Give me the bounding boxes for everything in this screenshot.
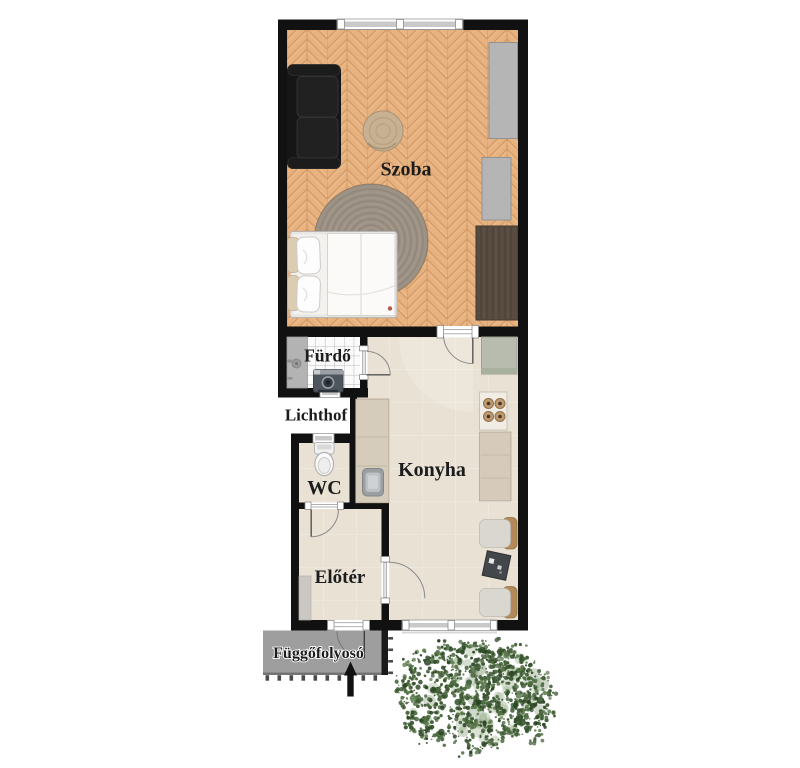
svg-text:Lichthof: Lichthof <box>285 406 348 425</box>
svg-text:WC: WC <box>307 477 341 499</box>
svg-text:Előtér: Előtér <box>315 567 366 588</box>
svg-text:Fürdő: Fürdő <box>304 346 351 366</box>
svg-text:Függőfolyosó: Függőfolyosó <box>273 645 364 662</box>
svg-text:Konyha: Konyha <box>398 459 466 481</box>
svg-text:Szoba: Szoba <box>380 159 431 181</box>
